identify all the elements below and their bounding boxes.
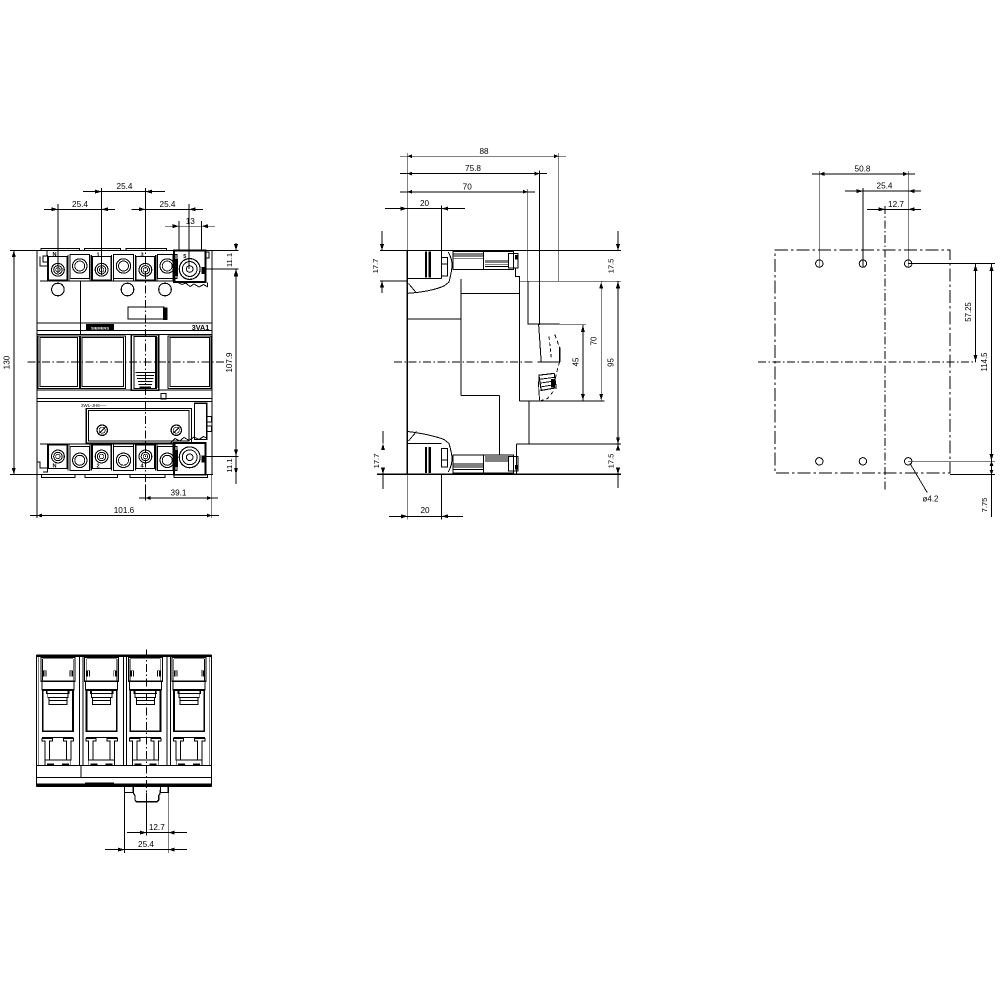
svg-text:25.4: 25.4 (117, 182, 133, 191)
svg-text:SIEMENS: SIEMENS (91, 325, 109, 330)
svg-text:25.4: 25.4 (877, 182, 893, 191)
svg-text:17.7: 17.7 (372, 454, 381, 469)
svg-text:3: 3 (140, 253, 143, 259)
svg-text:3VA1: 3VA1 (192, 323, 209, 332)
svg-text:N: N (52, 252, 56, 258)
svg-text:75.8: 75.8 (465, 164, 481, 173)
svg-text:25.4: 25.4 (138, 840, 154, 849)
svg-text:50.8: 50.8 (855, 165, 871, 174)
svg-text:70: 70 (590, 336, 599, 345)
svg-text:88: 88 (479, 147, 489, 156)
svg-text:114.5: 114.5 (980, 352, 989, 372)
svg-text:N: N (52, 464, 56, 470)
svg-text:17.7: 17.7 (371, 259, 380, 274)
svg-text:11.1: 11.1 (225, 253, 234, 267)
svg-text:57.25: 57.25 (964, 302, 973, 322)
svg-text:25.4: 25.4 (72, 200, 88, 209)
svg-text:107.9: 107.9 (225, 352, 234, 373)
svg-text:17.5: 17.5 (606, 259, 615, 274)
svg-text:11.1: 11.1 (225, 458, 234, 472)
svg-text:1: 1 (96, 253, 99, 259)
svg-text:3WL-JH6-––: 3WL-JH6-–– (81, 403, 107, 408)
svg-text:20: 20 (420, 506, 430, 515)
svg-text:39.1: 39.1 (171, 489, 187, 498)
svg-text:20: 20 (420, 199, 430, 208)
svg-text:12.7: 12.7 (149, 823, 165, 832)
svg-text:17.5: 17.5 (606, 454, 615, 469)
svg-text:45: 45 (571, 357, 580, 366)
svg-text:12.7: 12.7 (888, 200, 904, 209)
svg-text:130: 130 (3, 355, 12, 369)
svg-text:13: 13 (186, 217, 196, 226)
svg-text:25.4: 25.4 (160, 200, 176, 209)
svg-text:101.6: 101.6 (114, 506, 135, 515)
svg-text:7.75: 7.75 (980, 498, 989, 513)
svg-text:70: 70 (463, 182, 473, 191)
svg-text:ø4.2: ø4.2 (922, 495, 939, 504)
svg-text:95: 95 (606, 358, 615, 367)
svg-text:2: 2 (96, 464, 99, 470)
